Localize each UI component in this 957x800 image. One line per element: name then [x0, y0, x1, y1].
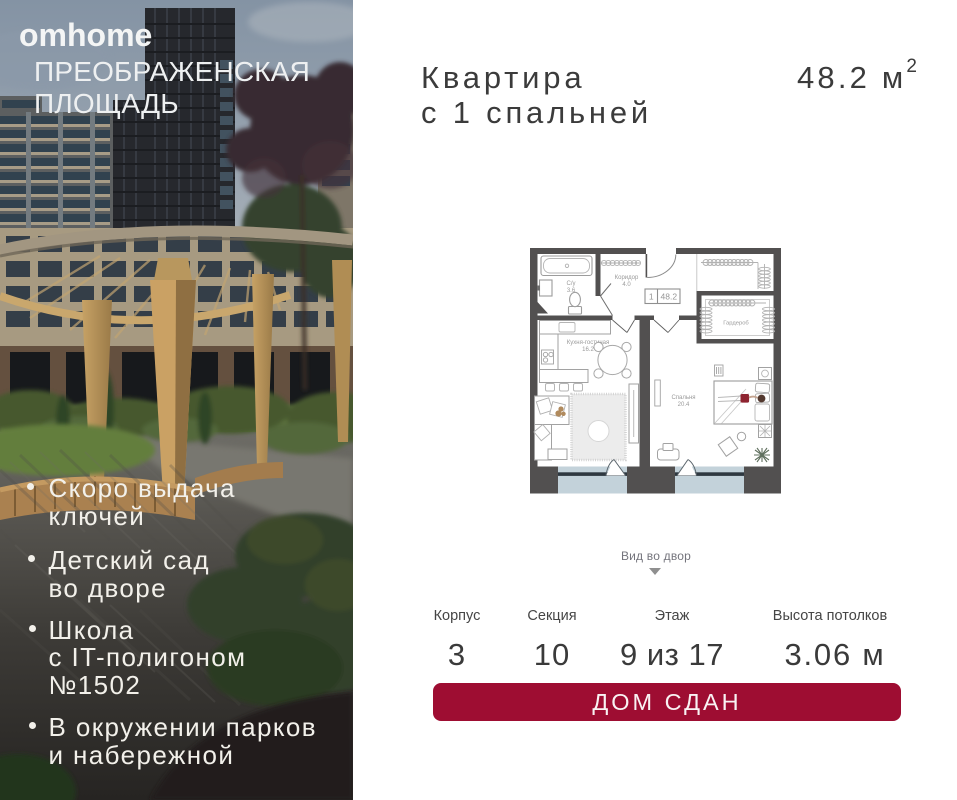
svg-text:16.2: 16.2: [582, 347, 594, 353]
svg-text:Гардероб: Гардероб: [723, 321, 749, 327]
svg-text:Коридор: Коридор: [615, 275, 639, 281]
svg-text:4.0: 4.0: [622, 282, 631, 288]
svg-text:С/у: С/у: [567, 281, 576, 287]
svg-text:Спальня: Спальня: [671, 395, 695, 401]
svg-text:48.2: 48.2: [661, 292, 678, 302]
svg-text:3.6: 3.6: [567, 288, 576, 294]
svg-text:20.4: 20.4: [678, 402, 690, 408]
svg-text:1: 1: [649, 292, 654, 302]
